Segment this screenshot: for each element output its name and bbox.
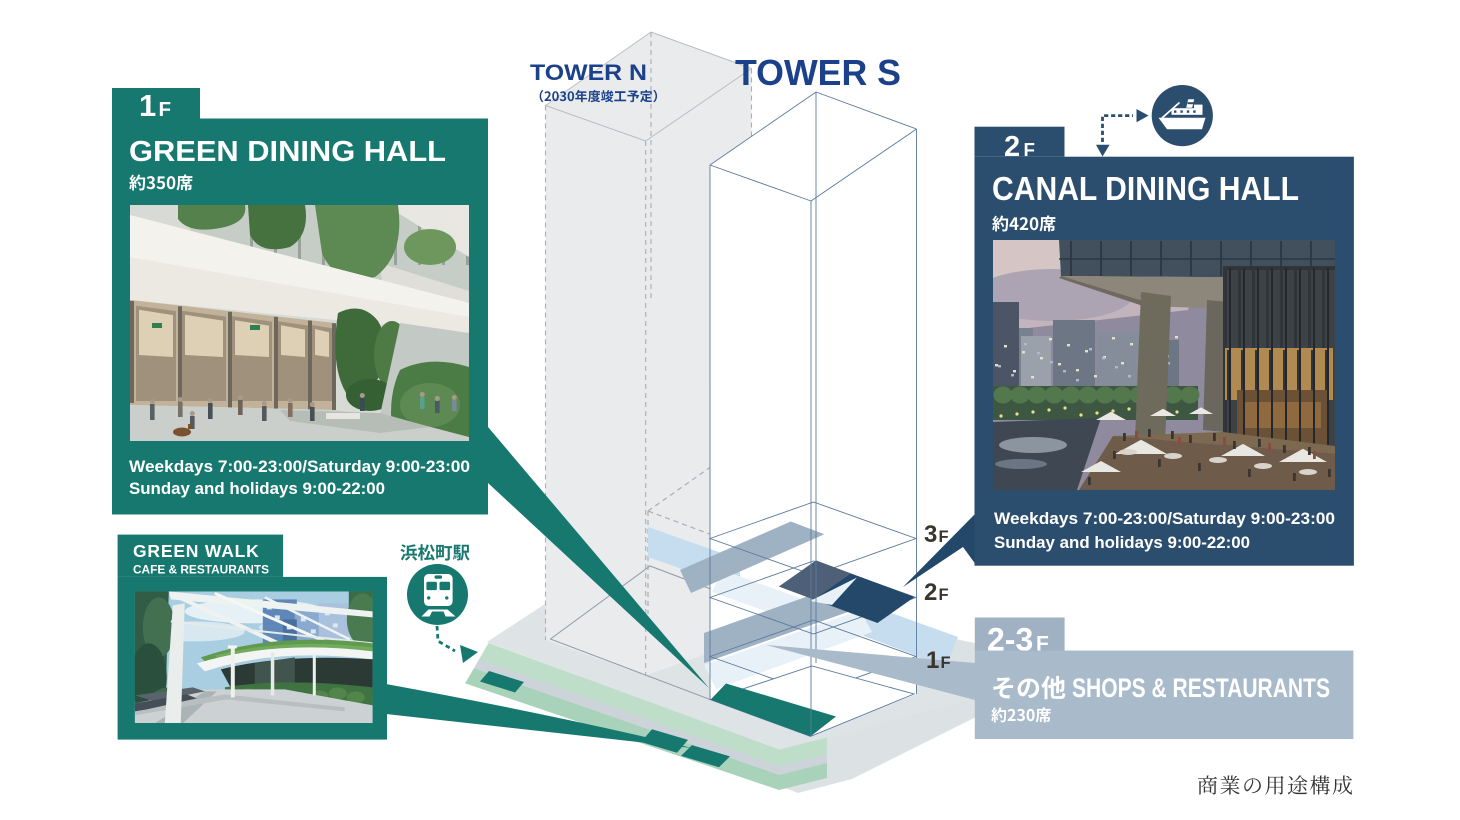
svg-text:TOWER N: TOWER N (530, 60, 647, 85)
svg-text:3: 3 (924, 521, 937, 548)
svg-text:TOWER S: TOWER S (735, 52, 901, 93)
svg-text:GREEN DINING HALL: GREEN DINING HALL (129, 136, 446, 168)
svg-text:F: F (939, 528, 949, 546)
svg-text:2: 2 (924, 579, 937, 606)
svg-text:F: F (159, 98, 172, 121)
svg-text:Weekdays 7:00-23:00/Saturday 9: Weekdays 7:00-23:00/Saturday 9:00-23:00 (129, 458, 470, 476)
svg-text:SHOPS & RESTAURANTS: SHOPS & RESTAURANTS (1072, 673, 1330, 703)
svg-text:Weekdays 7:00-23:00/Saturday 9: Weekdays 7:00-23:00/Saturday 9:00-23:00 (994, 510, 1335, 528)
svg-text:F: F (939, 586, 949, 604)
svg-text:Sunday and holidays 9:00-22:0: Sunday and holidays 9:00-22:00 (129, 480, 385, 498)
svg-text:CAFE & RESTAURANTS: CAFE & RESTAURANTS (133, 563, 269, 577)
svg-text:1: 1 (139, 88, 156, 123)
svg-text:GREEN WALK: GREEN WALK (133, 541, 260, 561)
svg-text:F: F (941, 654, 951, 672)
svg-text:CANAL DINING HALL: CANAL DINING HALL (992, 170, 1299, 207)
svg-text:Sunday and holidays 9:00-22:0: Sunday and holidays 9:00-22:00 (994, 534, 1250, 552)
svg-text:1: 1 (926, 647, 939, 674)
